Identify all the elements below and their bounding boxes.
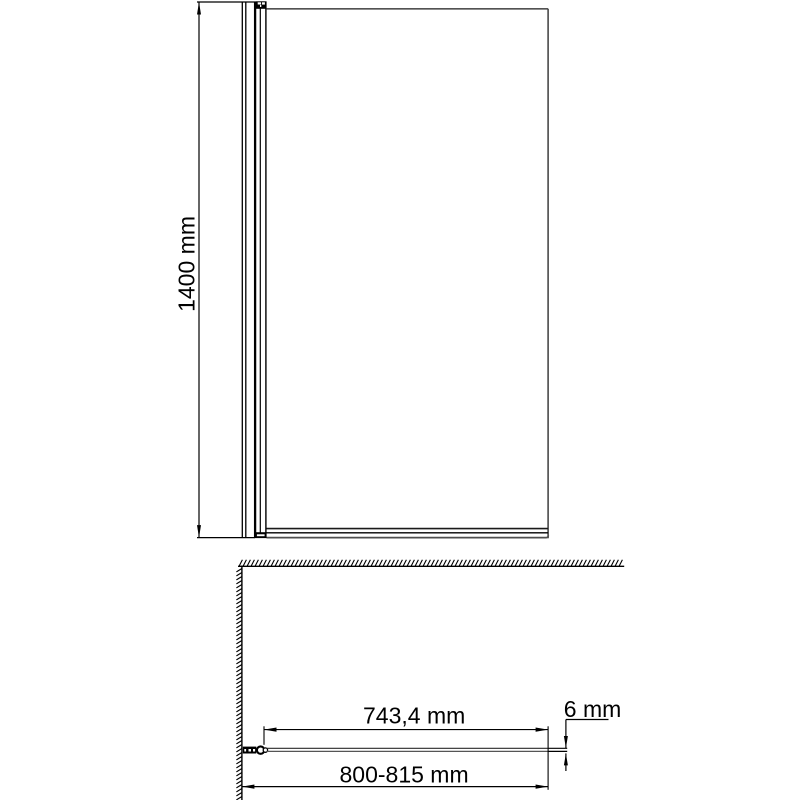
svg-text:1400 mm: 1400 mm <box>174 216 200 312</box>
svg-text:743,4 mm: 743,4 mm <box>363 702 465 728</box>
svg-text:6 mm: 6 mm <box>564 696 622 722</box>
svg-text:800-815 mm: 800-815 mm <box>340 762 469 788</box>
